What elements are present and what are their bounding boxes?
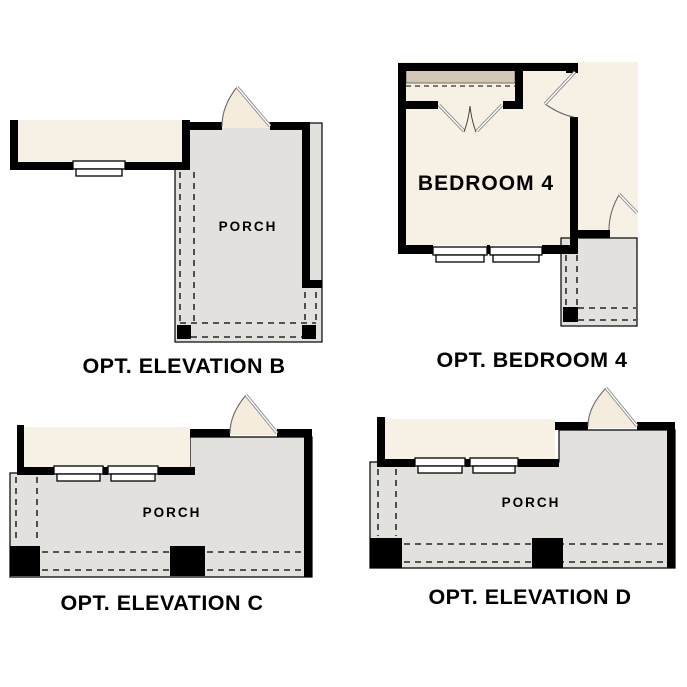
door-swing	[588, 388, 637, 428]
door-swing	[230, 395, 277, 435]
porch-post	[10, 546, 40, 576]
house-interior	[17, 120, 188, 163]
porch-post	[532, 538, 563, 568]
window	[470, 458, 518, 473]
porch-post	[370, 538, 402, 568]
floorplan-sheet: PORCH OPT. ELEVATION B	[0, 0, 687, 687]
window	[490, 247, 542, 262]
room-label: PORCH	[219, 219, 278, 234]
porch-post	[177, 325, 191, 339]
plan-title: OPT. ELEVATION B	[82, 354, 285, 378]
plan-elevation-c: PORCH OPT. ELEVATION C	[10, 395, 312, 615]
plan-bedroom-4: BEDROOM 4 OPT. BEDROOM 4	[398, 62, 638, 372]
plan-elevation-d: PORCH OPT. ELEVATION D	[370, 388, 675, 609]
window	[54, 466, 103, 481]
floorplan-drawing: PORCH OPT. ELEVATION B	[0, 0, 687, 687]
window	[415, 458, 465, 473]
window	[73, 161, 125, 176]
porch-post	[563, 307, 578, 322]
door-swing	[222, 87, 270, 128]
room-label: PORCH	[502, 495, 561, 510]
house-interior	[24, 427, 190, 467]
window	[433, 247, 487, 262]
room-label: BEDROOM 4	[418, 172, 554, 195]
porch-post	[170, 546, 205, 576]
plan-elevation-b: PORCH OPT. ELEVATION B	[10, 87, 322, 378]
plan-title: OPT. ELEVATION D	[428, 585, 631, 609]
plan-title: OPT. ELEVATION C	[60, 591, 263, 615]
house-interior	[385, 419, 555, 461]
window	[108, 466, 158, 481]
room-label: PORCH	[143, 505, 202, 520]
porch-post	[302, 325, 316, 339]
plan-title: OPT. BEDROOM 4	[437, 348, 628, 372]
